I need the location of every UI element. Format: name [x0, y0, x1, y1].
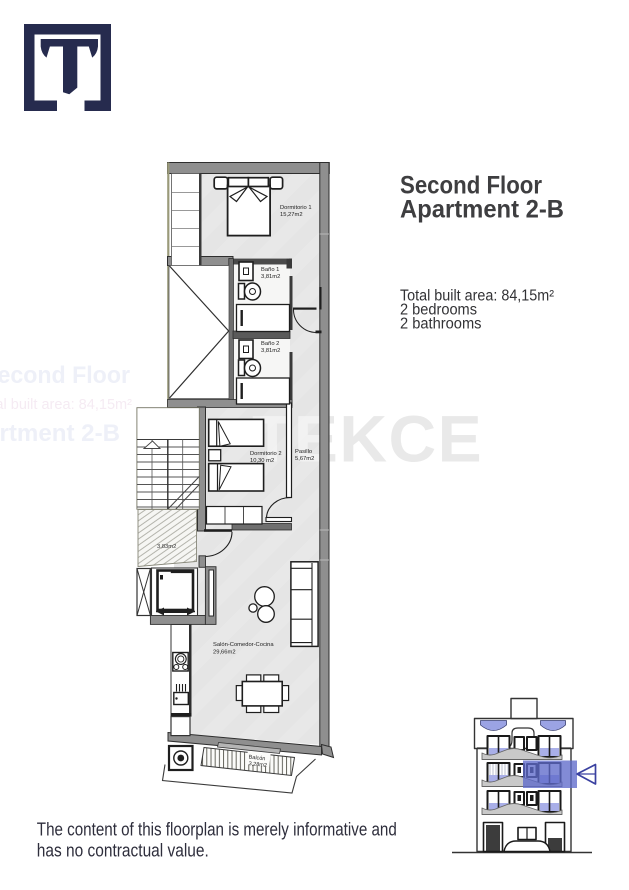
- svg-text:29,66m2: 29,66m2: [213, 650, 236, 656]
- svg-text:Second Floor: Second Floor: [0, 362, 130, 389]
- svg-text:3,81m2: 3,81m2: [261, 348, 280, 354]
- svg-text:Baño 2: Baño 2: [261, 341, 279, 347]
- svg-text:10,30 m2: 10,30 m2: [250, 458, 274, 464]
- svg-text:Baño 1: Baño 1: [261, 267, 279, 273]
- svg-text:The content of this floorplan: The content of this floorplan is merely …: [37, 820, 397, 840]
- svg-text:3,83m2: 3,83m2: [157, 544, 176, 550]
- svg-text:2 bathrooms: 2 bathrooms: [400, 316, 482, 333]
- svg-text:5,67m2: 5,67m2: [295, 456, 314, 462]
- svg-text:Total built area: 84,15m²: Total built area: 84,15m²: [0, 397, 132, 413]
- svg-text:3,81m2: 3,81m2: [261, 274, 280, 280]
- svg-text:Pasillo: Pasillo: [295, 449, 312, 455]
- svg-text:Salón-Comedor-Cocina: Salón-Comedor-Cocina: [213, 642, 274, 648]
- svg-text:Dormitorio 2: Dormitorio 2: [250, 451, 282, 457]
- svg-text:15,27m2: 15,27m2: [280, 212, 303, 218]
- svg-text:Apartment 2-B: Apartment 2-B: [0, 420, 120, 447]
- svg-text:Dormitorio 1: Dormitorio 1: [280, 205, 312, 211]
- svg-text:Apartment 2-B: Apartment 2-B: [400, 196, 564, 224]
- svg-text:has no contractual value.: has no contractual value.: [37, 841, 209, 861]
